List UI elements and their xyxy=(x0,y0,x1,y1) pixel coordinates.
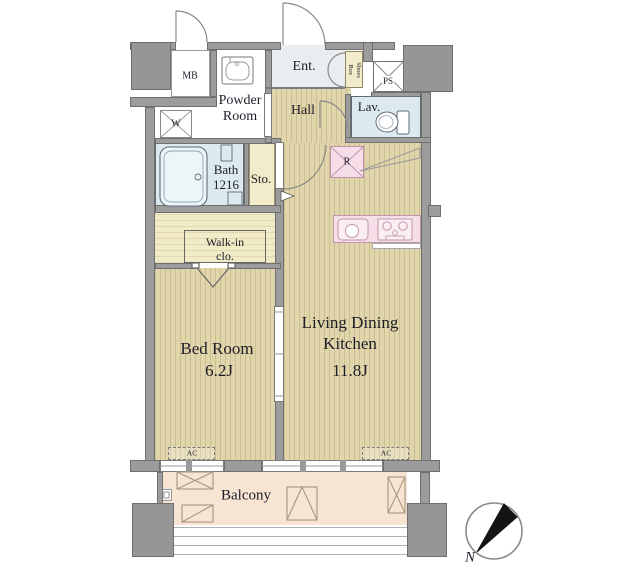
label-bath-line2: 1216 xyxy=(213,177,239,192)
floor-plan: MB Powder Room Ent. Shoes Box PS Hall La… xyxy=(0,0,640,569)
sliding-door-bedroom xyxy=(274,306,284,402)
wall xyxy=(363,42,373,62)
balcony-railing xyxy=(163,527,415,555)
pillar xyxy=(131,42,171,90)
label-bedroom-size: 6.2J xyxy=(205,361,233,381)
wall xyxy=(210,50,217,97)
pillar xyxy=(407,503,447,557)
label-bath: Bath 1216 xyxy=(213,162,239,192)
label-powder-room: Powder Room xyxy=(219,93,262,125)
wall xyxy=(325,42,395,50)
label-shoes-box: Shoes Box xyxy=(346,62,362,78)
wall-stub xyxy=(428,205,441,217)
label-refrigerator: R xyxy=(344,157,351,168)
label-hall: Hall xyxy=(291,103,315,119)
wall xyxy=(383,460,440,472)
compass-needle xyxy=(477,504,517,552)
wall xyxy=(371,92,421,97)
wall xyxy=(230,263,281,269)
label-washer: W xyxy=(171,119,180,130)
label-ac-ldk: AC xyxy=(381,449,391,458)
wall xyxy=(155,263,196,269)
pillar xyxy=(132,503,174,557)
label-walkin-line1: Walk-in xyxy=(206,235,244,249)
window-bedroom xyxy=(160,460,224,472)
pillar xyxy=(403,45,453,92)
entrance-step-line xyxy=(266,87,345,89)
label-powder-line1: Powder xyxy=(219,93,262,109)
kitchen-counter xyxy=(333,215,421,243)
wall xyxy=(224,460,262,472)
wall xyxy=(155,205,281,213)
wall xyxy=(420,472,430,505)
label-bath-line1: Bath xyxy=(213,162,239,177)
label-ldk-line2: Kitchen xyxy=(302,333,399,354)
label-compass-north: N xyxy=(465,550,475,567)
wall xyxy=(345,137,431,143)
wall xyxy=(275,143,284,462)
mb-door-arc xyxy=(176,11,207,42)
wall xyxy=(130,97,217,107)
label-ps: PS xyxy=(382,76,394,86)
room-ldk xyxy=(284,143,421,460)
label-shoes-line1: Shoes xyxy=(354,62,362,78)
wall xyxy=(421,92,431,462)
wall xyxy=(244,143,249,207)
wall xyxy=(145,107,155,462)
label-ldk: Living Dining Kitchen xyxy=(302,312,399,354)
label-entrance: Ent. xyxy=(293,59,316,75)
label-lavatory: Lav. xyxy=(358,99,381,115)
label-balcony: Balcony xyxy=(221,488,271,505)
room-balcony xyxy=(163,472,407,525)
window-mullion xyxy=(300,460,306,472)
wall xyxy=(207,42,281,50)
label-ldk-size: 11.8J xyxy=(332,361,368,381)
wall xyxy=(155,138,281,144)
label-powder-line2: Room xyxy=(219,109,262,125)
wall xyxy=(130,460,160,472)
label-bedroom: Bed Room xyxy=(180,339,253,359)
label-storage: Sto. xyxy=(251,171,272,187)
label-mb: MB xyxy=(182,71,198,82)
wall xyxy=(345,94,351,143)
label-walk-in-closet: Walk-in clo. xyxy=(206,235,244,263)
door-leaf-ldk xyxy=(275,142,284,189)
window-ldk xyxy=(262,460,383,472)
window-mullion xyxy=(340,460,346,472)
label-ldk-line1: Living Dining xyxy=(302,312,399,333)
window-mullion xyxy=(186,460,192,472)
label-walkin-line2: clo. xyxy=(206,249,244,263)
label-shoes-line2: Box xyxy=(346,62,354,78)
entrance-door-arc xyxy=(283,3,325,45)
sliding-door-powder xyxy=(264,93,272,137)
label-ac-bedroom: AC xyxy=(187,449,197,458)
kitchen-counter-edge xyxy=(372,243,421,249)
